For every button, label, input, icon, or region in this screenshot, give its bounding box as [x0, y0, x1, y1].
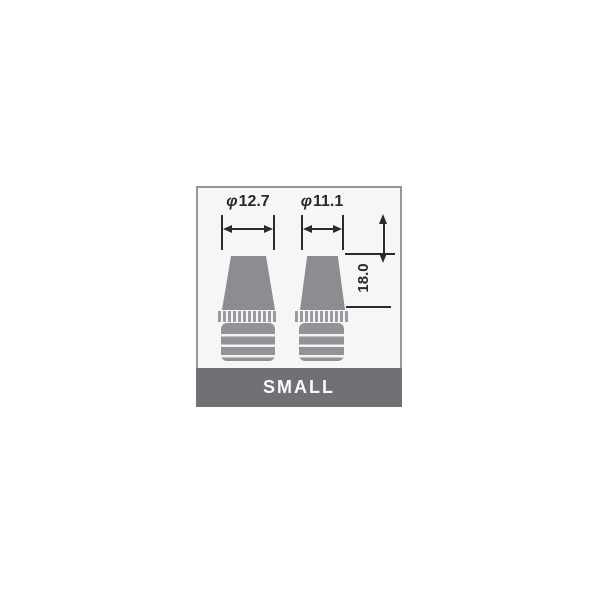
arrowhead-right-icon [264, 225, 273, 233]
left-diameter-dimension-arrow [223, 225, 273, 233]
extension-line [342, 215, 344, 250]
left-diameter-label: φ12.7 [220, 193, 276, 211]
extension-line [273, 215, 275, 250]
right-diameter-dimension-arrow [303, 225, 342, 233]
arrowhead-down-icon [379, 253, 387, 263]
dimension-diagram: φ12.7 φ11.1 [196, 186, 402, 368]
tip-serration-large [218, 311, 277, 322]
tip-ribbed-body-large [221, 323, 275, 361]
phi-symbol: φ [226, 193, 237, 210]
tip-ribbed-body-small [299, 323, 344, 361]
tip-cap-small [300, 256, 345, 310]
phi-symbol: φ [301, 193, 312, 210]
page-canvas: φ12.7 φ11.1 [0, 0, 600, 600]
dimension-line [383, 222, 385, 255]
arrowhead-right-icon [333, 225, 342, 233]
right-diameter-value: 11.1 [313, 193, 343, 210]
size-banner: SMALL [196, 368, 402, 407]
tip-cap-large [222, 256, 275, 310]
size-diagram-card: φ12.7 φ11.1 [196, 186, 402, 407]
size-banner-label: SMALL [263, 377, 335, 398]
left-diameter-value: 12.7 [239, 193, 270, 210]
tip-serration-small [295, 311, 349, 322]
height-value-label: 18.0 [356, 258, 372, 298]
right-diameter-label: φ11.1 [294, 193, 350, 211]
height-dimension-arrow [379, 214, 388, 263]
height-extension-line-bottom [346, 306, 391, 308]
